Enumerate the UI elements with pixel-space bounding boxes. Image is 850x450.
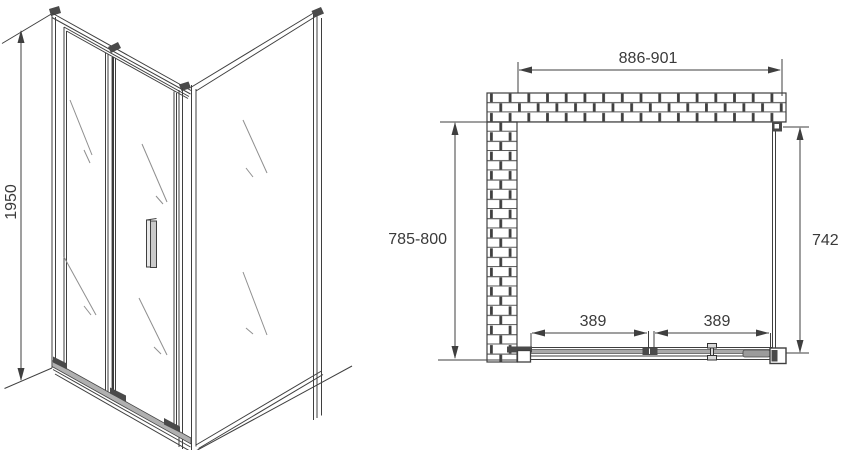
top-wall-hatch [487,93,786,122]
front-glass-panels [106,53,177,433]
brick-walls [487,93,786,362]
front-perspective-view: 1950 [2,6,352,450]
depth-dimension-label: 785-800 [388,231,447,248]
door-rail-plan [507,344,786,364]
arrowhead-up [18,30,25,43]
left-door-dimension-label: 389 [580,313,607,330]
front-top-rail [52,13,191,99]
left-wall-profile [49,6,67,370]
left-wall-profile-plan [518,351,531,363]
wall-bracket-center [775,124,780,129]
plan-view: 886-901 785-800 742 [388,50,839,364]
front-corner-post [179,85,196,450]
arrowhead-down [18,368,25,381]
glass-reflections [64,100,267,355]
width-dimension: 886-901 [518,50,782,96]
side-top-rail [192,13,316,91]
side-bottom-and-floor [5,366,353,450]
side-panel-plan [772,122,782,350]
shower-enclosure-drawing: 1950 [0,0,850,450]
door-roller-hanger [108,42,121,53]
left-wall-hatch [487,122,517,362]
floor-edge-left [5,368,53,389]
door-handle[interactable] [147,219,157,268]
corner-post-insert [772,350,778,362]
side-panel-dimension: 742 [783,127,839,353]
side-panel-dimension-label: 742 [812,232,839,249]
technical-drawing-page: 1950 [0,0,850,450]
dimension-extension-line [2,13,53,44]
door-slider-bar [743,350,770,357]
height-dimension-label: 1950 [3,184,20,220]
door-section-dimensions: 389 389 [531,313,771,348]
front-bottom-rail [52,357,191,450]
back-corner-post [312,7,325,420]
width-dimension-label: 886-901 [619,50,678,67]
right-door-dimension-label: 389 [704,313,731,330]
height-dimension: 1950 [2,13,53,381]
floor-edge-right [192,366,352,450]
